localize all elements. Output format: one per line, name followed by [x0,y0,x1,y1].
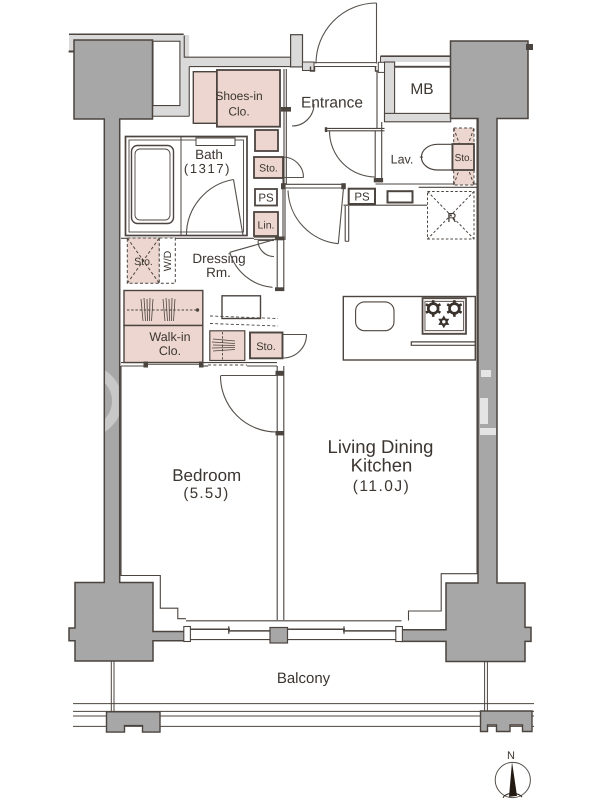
svg-text:Sto.: Sto. [256,341,276,353]
svg-text:Bath: Bath [195,147,223,162]
svg-text:N: N [507,750,515,762]
svg-text:Kitchen: Kitchen [351,455,413,476]
svg-text:Walk-in: Walk-in [149,330,190,344]
svg-text:W/D: W/D [162,250,174,271]
svg-text:PS: PS [354,192,370,204]
svg-text:Clo.: Clo. [159,344,181,358]
svg-text:MB: MB [410,81,433,98]
svg-text:Entrance: Entrance [301,95,363,112]
svg-text:Shoes-in: Shoes-in [215,89,262,103]
svg-text:(11.0J): (11.0J) [353,478,411,495]
svg-text:Clo.: Clo. [228,105,249,119]
svg-text:Balcony: Balcony [277,670,331,687]
svg-text:Sto.: Sto. [134,256,153,268]
svg-text:Lin.: Lin. [258,220,275,232]
svg-text:Sto.: Sto. [455,153,473,164]
svg-text:(1317): (1317) [184,161,231,176]
svg-text:Lav.: Lav. [391,153,414,167]
svg-text:R: R [447,210,456,225]
svg-text:Dressing: Dressing [192,251,245,266]
svg-text:Sto.: Sto. [259,163,278,175]
svg-text:(5.5J): (5.5J) [183,485,229,502]
svg-text:PS: PS [258,193,274,205]
svg-text:Rm.: Rm. [206,265,231,280]
svg-text:Bedroom: Bedroom [172,466,241,485]
